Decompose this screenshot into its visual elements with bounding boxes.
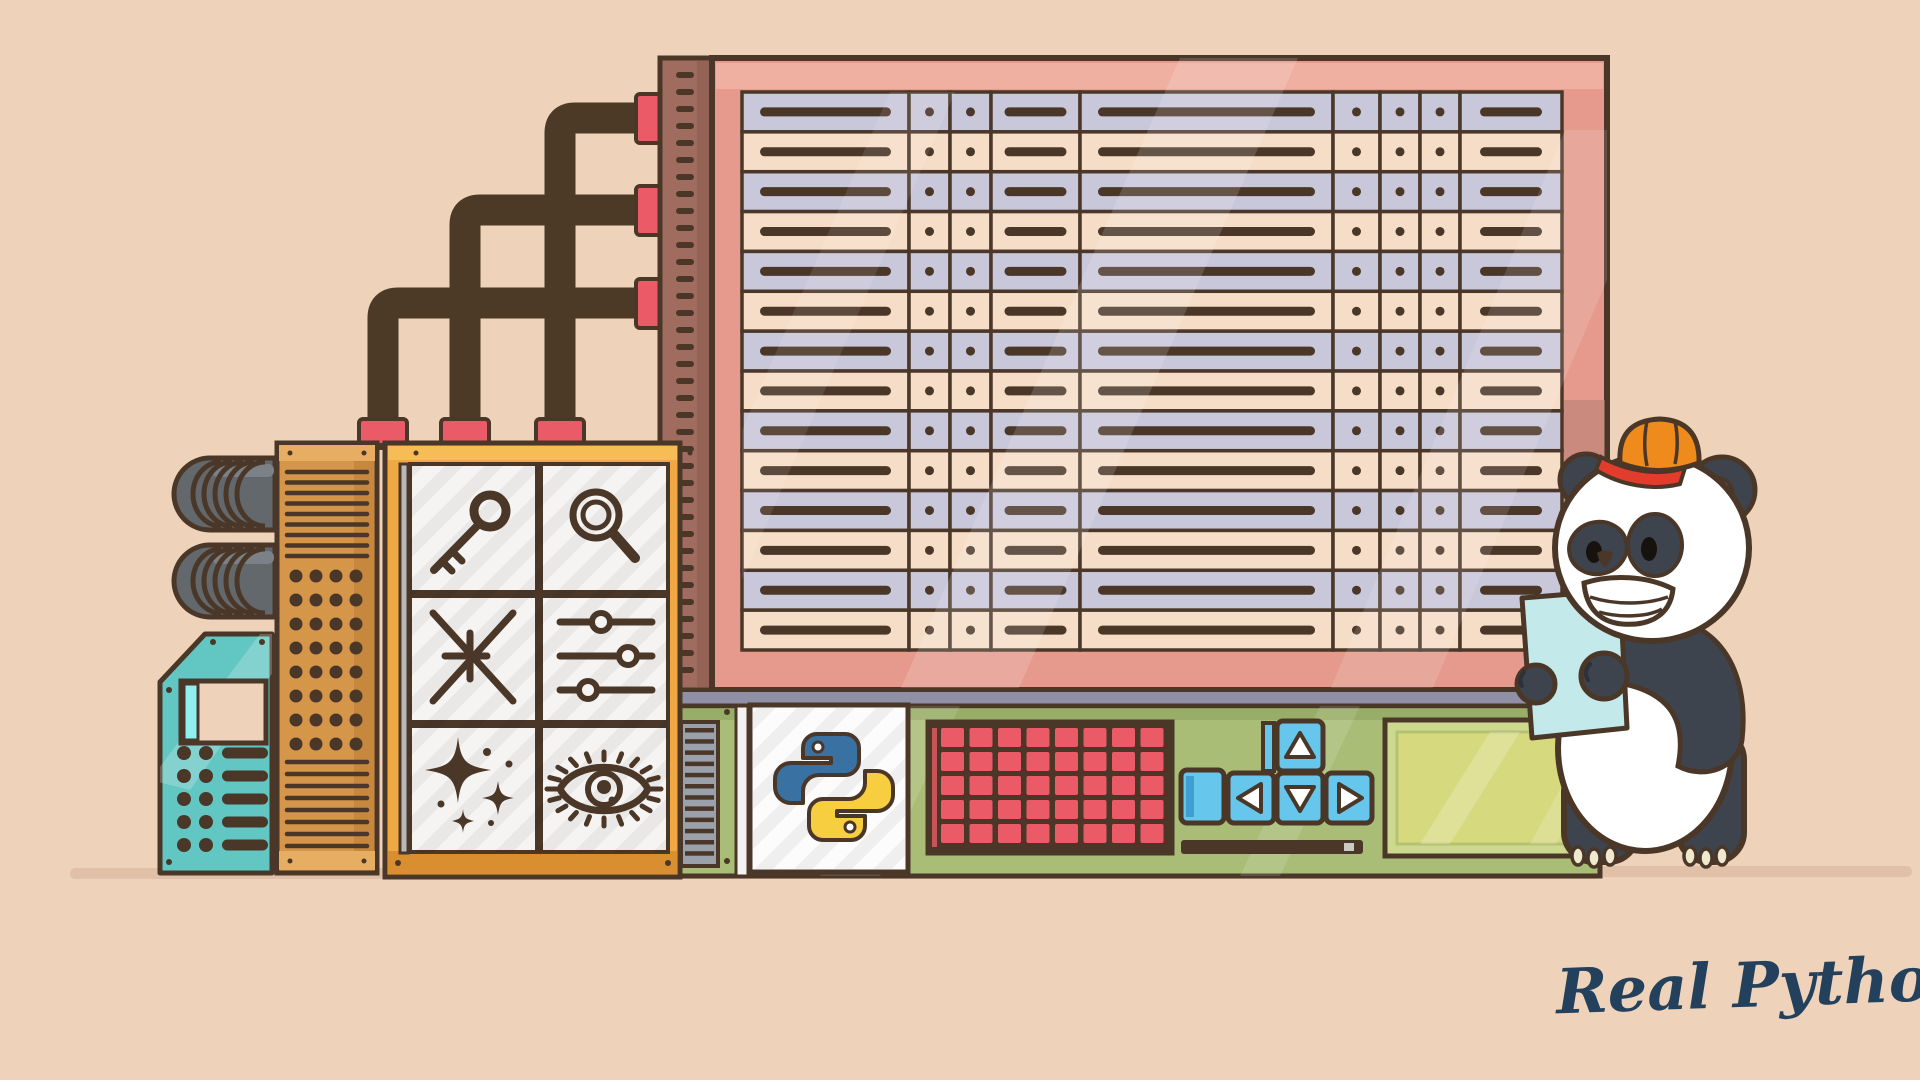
vent-slat [685, 762, 714, 767]
cell-text-bar [1480, 586, 1542, 595]
spine-dash [676, 72, 694, 78]
cell-dot [925, 546, 934, 555]
key-side [1263, 723, 1274, 771]
red-key-grid [928, 722, 1172, 853]
eye-lash [619, 817, 622, 825]
keypad-key [1112, 824, 1135, 843]
spine-dash [676, 174, 694, 180]
python-card [750, 705, 908, 872]
cell-dot [966, 227, 975, 236]
cabinet-dot [350, 714, 363, 727]
keypad-key [1027, 728, 1050, 747]
keypad-key [970, 800, 993, 819]
cabinet-dot [290, 570, 303, 583]
cabinet-dot [290, 666, 303, 679]
keypad-key [1084, 728, 1107, 747]
cabinet-dot [350, 594, 363, 607]
vent-slat [685, 851, 714, 856]
teal-dot [177, 838, 191, 852]
cabinet-dot [310, 618, 323, 631]
keypad-key [998, 824, 1021, 843]
keypad-key [1112, 800, 1135, 819]
keypad-key [941, 752, 964, 771]
keypad-key [941, 800, 964, 819]
keypad-key [970, 824, 993, 843]
cabinet-dot [330, 618, 343, 631]
spine-dash [676, 378, 694, 384]
cell-text-bar [1005, 267, 1067, 276]
cell-text-bar [1480, 147, 1542, 156]
keypad-key [1141, 752, 1164, 771]
vent-slat [685, 806, 714, 811]
spine-dash [676, 225, 694, 231]
cell-text-bar [760, 107, 891, 116]
cell-text-bar [1005, 187, 1067, 196]
spine-dash [676, 327, 694, 333]
eye-lash [586, 754, 589, 762]
cabinet-dot [330, 594, 343, 607]
teal-dot [177, 815, 191, 829]
keypad-key [1055, 752, 1078, 771]
cell-dot [1396, 227, 1405, 236]
icon-tile [410, 726, 537, 852]
scene-canvas: Real Python [0, 0, 1920, 1080]
spine-dash [676, 344, 694, 350]
vent-slat [685, 840, 714, 845]
cell-dot [1352, 227, 1361, 236]
cabinet-dot [290, 642, 303, 655]
cell-text-bar [1098, 506, 1315, 515]
cell-dot [1396, 107, 1405, 116]
cell-dot [1352, 107, 1361, 116]
cell-dot [1396, 466, 1405, 475]
eye-lash [586, 817, 589, 825]
vent-slat [685, 728, 714, 733]
cabinet-dot [350, 618, 363, 631]
cell-dot [1436, 187, 1445, 196]
keypad-key [1027, 800, 1050, 819]
cabinet-dot [310, 570, 323, 583]
cell-dot [1352, 586, 1361, 595]
teal-dot [177, 792, 191, 806]
keypad-key [941, 824, 964, 843]
teal-bar [222, 840, 268, 851]
cell-dot [1436, 147, 1445, 156]
spine-dash [676, 191, 694, 197]
eye-lash [649, 778, 659, 780]
cell-text-bar [1480, 187, 1542, 196]
cell-dot [1352, 466, 1361, 475]
cell-dot [1396, 426, 1405, 435]
cell-dot [1396, 347, 1405, 356]
keypad-key [1141, 728, 1164, 747]
vent-slat [685, 750, 714, 755]
keypad-key [1084, 824, 1107, 843]
cell-text-bar [1098, 546, 1315, 555]
keypad-key [1112, 728, 1135, 747]
cell-dot [1436, 307, 1445, 316]
cabinet-dot [330, 570, 343, 583]
bellows-tube [174, 458, 275, 530]
cabinet-dot [310, 714, 323, 727]
cabinet-dot [310, 666, 323, 679]
orange-cabinet [277, 443, 377, 873]
cell-dot [925, 586, 934, 595]
bellows-tube [174, 545, 275, 617]
teal-dot [199, 792, 213, 806]
cell-dot [966, 347, 975, 356]
shelf-divider-strip [736, 706, 748, 876]
spine-dash [676, 157, 694, 163]
keypad-key [970, 752, 993, 771]
teal-dot [177, 746, 191, 760]
cell-dot [966, 386, 975, 395]
keypad-key [998, 752, 1021, 771]
cell-dot [925, 227, 934, 236]
cell-dot [925, 187, 934, 196]
cabinet-dot [350, 570, 363, 583]
cell-dot [925, 426, 934, 435]
cell-dot [1352, 147, 1361, 156]
cabinet-dot [290, 690, 303, 703]
vent-slat [685, 795, 714, 800]
keypad-key [1055, 824, 1078, 843]
teal-dot [199, 746, 213, 760]
cell-dot [1352, 426, 1361, 435]
cell-dot [925, 307, 934, 316]
spine-dash [676, 361, 694, 367]
keypad-key [998, 776, 1021, 795]
cell-dot [1436, 227, 1445, 236]
cell-dot [1396, 267, 1405, 276]
icon-tile [541, 464, 668, 592]
cabinet-dot [290, 714, 303, 727]
spine-dash [676, 89, 694, 95]
keypad-key [1055, 776, 1078, 795]
cell-text-bar [1098, 586, 1315, 595]
cell-dot [1352, 307, 1361, 316]
keypad-key [970, 728, 993, 747]
keypad-key [998, 728, 1021, 747]
teal-dot [199, 769, 213, 783]
cabinet-dot [310, 642, 323, 655]
cell-text-bar [1480, 107, 1542, 116]
cabinet-dot [310, 690, 323, 703]
spine-dash [676, 276, 694, 282]
spine-dash [676, 429, 694, 435]
keypad-key [1027, 824, 1050, 843]
cabinet-dot [310, 738, 323, 751]
keypad-key [1084, 800, 1107, 819]
cell-dot [925, 267, 934, 276]
cell-dot [966, 187, 975, 196]
eye-lash [649, 798, 659, 800]
cell-text-bar [1005, 147, 1067, 156]
keypad-key [1084, 752, 1107, 771]
keypad-key [1084, 776, 1107, 795]
teal-dot [199, 815, 213, 829]
cabinet-dot [350, 690, 363, 703]
keypad-key [1141, 800, 1164, 819]
cabinet-dot [290, 738, 303, 751]
eye-lash [619, 754, 622, 762]
cell-dot [1436, 386, 1445, 395]
cell-text-bar [1005, 227, 1067, 236]
board-frame-highlight [716, 63, 1603, 89]
keypad-key [1055, 728, 1078, 747]
cell-dot [966, 307, 975, 316]
vent-slat [685, 773, 714, 778]
cell-dot [1396, 386, 1405, 395]
cell-dot [966, 107, 975, 116]
cabinet-dot [290, 594, 303, 607]
keypad-key [1112, 776, 1135, 795]
cell-text-bar [1005, 307, 1067, 316]
cabinet-dot [330, 714, 343, 727]
keypad-key [1141, 776, 1164, 795]
cell-dot [1436, 107, 1445, 116]
cell-dot [925, 506, 934, 515]
icon-panel [385, 443, 693, 877]
cabinet-dot [310, 594, 323, 607]
cell-dot [1436, 347, 1445, 356]
cell-dot [1352, 347, 1361, 356]
cell-dot [1352, 546, 1361, 555]
spine-dash [676, 293, 694, 299]
cell-dot [1396, 307, 1405, 316]
cell-dot [1396, 147, 1405, 156]
spine-dash [676, 208, 694, 214]
teal-dot [199, 838, 213, 852]
spine-dash [676, 106, 694, 112]
eye-lash [550, 778, 560, 780]
keypad-key [998, 800, 1021, 819]
teal-bar [222, 817, 268, 828]
vent-slat [685, 818, 714, 823]
keypad-key [1027, 752, 1050, 771]
cabinet-dot [290, 618, 303, 631]
keypad-key [970, 776, 993, 795]
keypad-key [1027, 776, 1050, 795]
teal-bar [222, 748, 268, 759]
cell-dot [925, 466, 934, 475]
cell-text-bar [1005, 107, 1067, 116]
data-board [712, 58, 1607, 690]
eye-lash [550, 798, 560, 800]
teal-bar [222, 794, 268, 805]
cell-dot [966, 267, 975, 276]
cabinet-dot [350, 666, 363, 679]
brand-logo-text: Real Python [1553, 941, 1920, 1029]
cell-dot [1352, 187, 1361, 196]
cell-text-bar [760, 546, 891, 555]
cabinet-dot [350, 738, 363, 751]
cell-text-bar [1098, 626, 1315, 635]
keypad-key [1141, 824, 1164, 843]
teal-window-glow [184, 684, 198, 740]
vent-slat [685, 829, 714, 834]
spine-dash [676, 310, 694, 316]
cell-dot [966, 466, 975, 475]
cell-text-bar [760, 506, 891, 515]
cell-dot [966, 426, 975, 435]
teal-dot [177, 769, 191, 783]
cell-dot [1352, 267, 1361, 276]
vent-slat [685, 784, 714, 789]
cell-dot [925, 386, 934, 395]
ruler-bar [1181, 840, 1363, 854]
cabinet-dot [330, 642, 343, 655]
keypad-key [1112, 752, 1135, 771]
cabinet-dot [330, 666, 343, 679]
spine-dash [676, 412, 694, 418]
cell-text-bar [760, 586, 891, 595]
keypad-key [1055, 800, 1078, 819]
panda-cap [1620, 419, 1699, 471]
cell-dot [1352, 506, 1361, 515]
illustration-pandas-dataframe-scene: Real Python [0, 0, 1920, 1080]
keypad-key [941, 776, 964, 795]
cabinet-dot [330, 690, 343, 703]
cabinet-dot [330, 738, 343, 751]
vent-slat [685, 739, 714, 744]
teal-bar [222, 771, 268, 782]
cell-dot [1396, 187, 1405, 196]
cell-dot [925, 347, 934, 356]
cell-dot [966, 147, 975, 156]
spine-dash [676, 242, 694, 248]
cell-dot [1436, 267, 1445, 276]
spine-dash [676, 123, 694, 129]
cabinet-dot [350, 642, 363, 655]
cell-dot [1396, 506, 1405, 515]
cell-dot [966, 506, 975, 515]
cell-text-bar [760, 626, 891, 635]
cell-text-bar [1098, 466, 1315, 475]
keypad-key [941, 728, 964, 747]
spine-dash [676, 259, 694, 265]
spine-dash [676, 140, 694, 146]
spine-dash [676, 395, 694, 401]
cell-dot [1352, 386, 1361, 395]
